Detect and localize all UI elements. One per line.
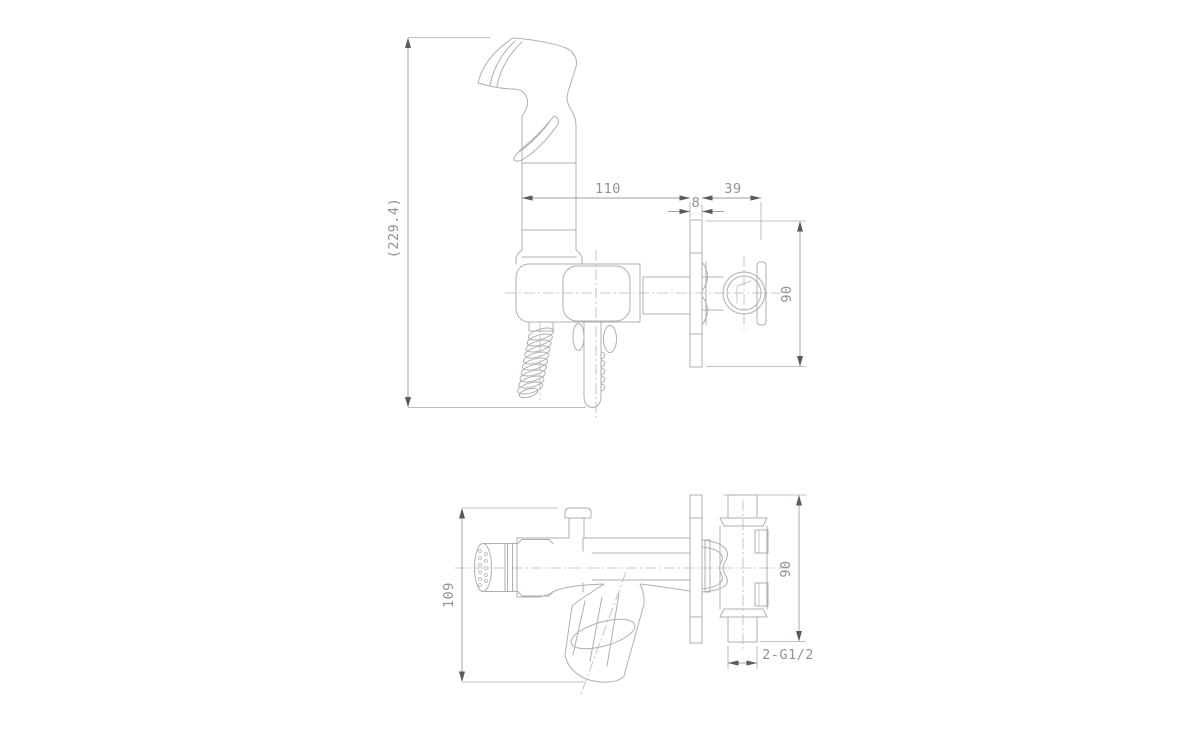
- plan-view: 109 90 2-G1/2: [441, 495, 814, 694]
- dim-thread-callout: 2-G1/2: [728, 646, 814, 669]
- hose-coil: [516, 322, 555, 399]
- handle-plan: [556, 584, 690, 682]
- connector-body-plan: [720, 495, 768, 642]
- dim-plate-height-side: 90: [706, 221, 806, 367]
- dim-label-thread-callout: 2-G1/2: [762, 647, 814, 663]
- dim-label-handle-to-wall: 110: [595, 181, 621, 197]
- sprayer-head-side: [478, 38, 577, 126]
- dim-overall-depth: 109: [441, 508, 584, 682]
- trigger-lever: [514, 116, 559, 161]
- dim-label-plate-height-side: 90: [779, 285, 795, 302]
- dim-overall-height: (229.4): [386, 38, 586, 408]
- wall-plate-plan: [690, 495, 727, 643]
- centerline-handle-plan: [581, 572, 626, 694]
- handle-column-side: [516, 116, 582, 264]
- dim-label-overall-height: (229.4): [386, 198, 402, 258]
- technical-drawing: (229.4) 110 8 39: [0, 0, 1200, 729]
- dim-handle-to-wall: 110: [522, 181, 690, 218]
- dim-label-connector-depth: 39: [724, 181, 741, 197]
- control-lever-side: [573, 322, 617, 408]
- dim-label-plate-height-plan: 90: [778, 560, 794, 577]
- side-view: (229.4) 110 8 39: [386, 38, 806, 421]
- wall-plate-side: [690, 220, 766, 367]
- dim-label-overall-depth: 109: [441, 582, 457, 608]
- drawing-canvas: (229.4) 110 8 39: [0, 0, 1200, 729]
- dim-label-plate-thickness: 8: [692, 195, 701, 211]
